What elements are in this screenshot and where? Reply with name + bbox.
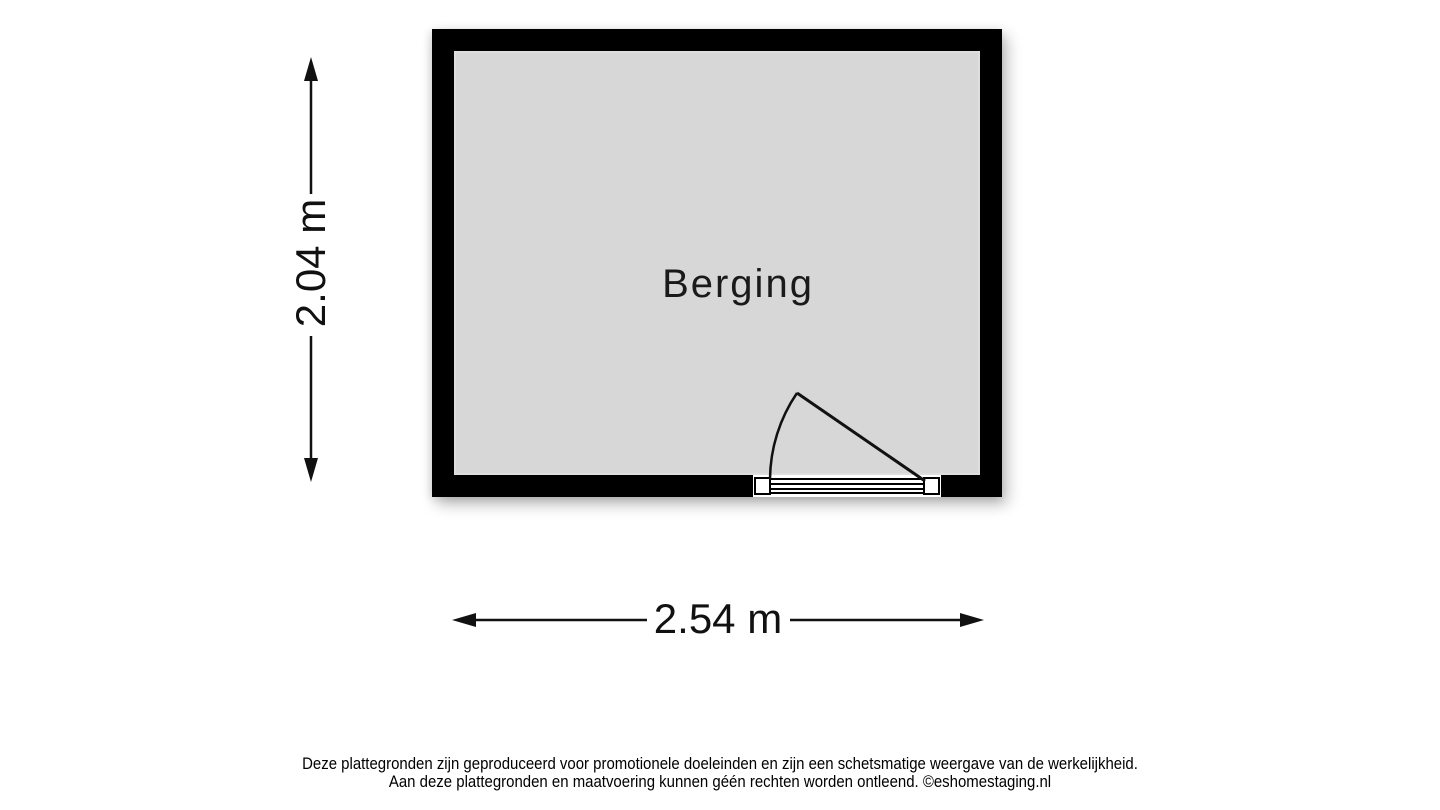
arrow-right-icon xyxy=(960,613,984,627)
disclaimer: Deze plattegronden zijn geproduceerd voo… xyxy=(86,755,1353,790)
room-floor: Berging xyxy=(454,51,980,475)
disclaimer-line-1: Deze plattegronden zijn geproduceerd voo… xyxy=(86,755,1353,773)
arrow-up-icon xyxy=(304,57,318,81)
door-opening xyxy=(753,475,941,497)
room-walls: Berging xyxy=(432,29,1002,497)
door-threshold-line xyxy=(771,483,923,485)
arrow-down-icon xyxy=(304,458,318,482)
disclaimer-line-2: Aan deze plattegronden en maatvoering ku… xyxy=(86,773,1353,791)
floorplan-canvas: Berging xyxy=(0,0,1440,810)
door-jamb-left xyxy=(754,477,771,495)
door-threshold-line xyxy=(771,488,923,490)
door-threshold xyxy=(771,478,923,494)
width-dimension-text: 2.54 m xyxy=(654,595,782,643)
arrow-left-icon xyxy=(452,613,476,627)
door-jamb-right xyxy=(923,477,940,495)
height-dimension-text: 2.04 m xyxy=(287,199,335,327)
room-label-text: Berging xyxy=(662,262,814,307)
